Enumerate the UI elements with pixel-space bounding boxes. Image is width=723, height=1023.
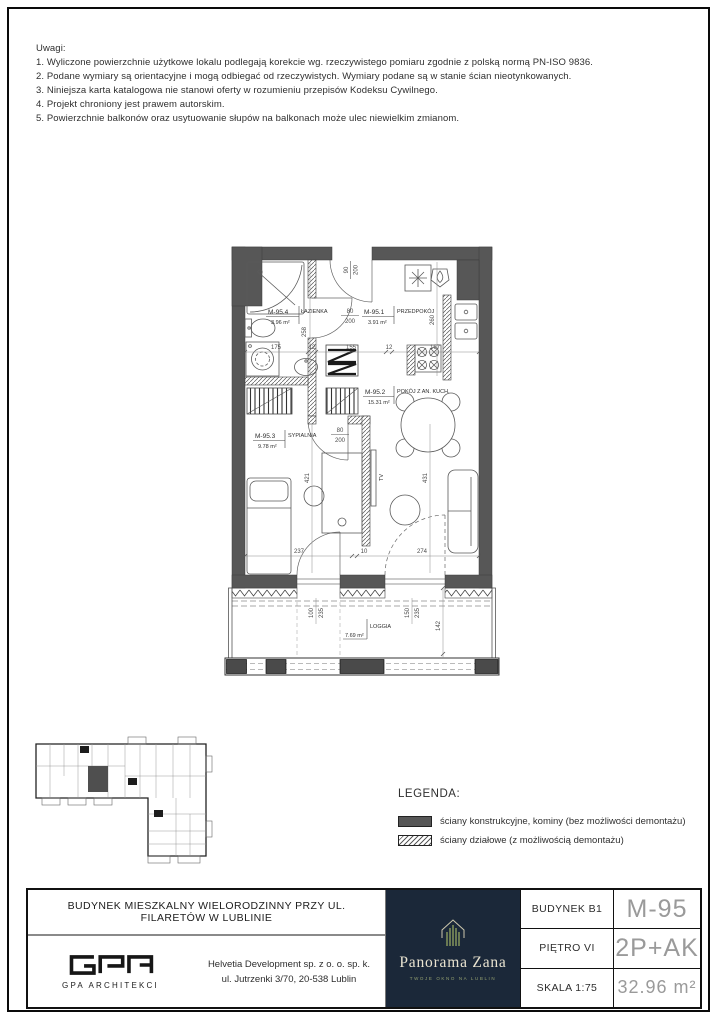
title-block-values: M-95 2P+AK 32.96 m² (613, 890, 700, 1007)
svg-text:90: 90 (344, 266, 350, 273)
legend-label: ściany działowe (z możliwością demontażu… (440, 835, 624, 846)
svg-text:235: 235 (319, 607, 325, 618)
floor-plan: 175 12 155 12 167 237 10 274 258 260 421… (222, 238, 502, 693)
svg-text:200: 200 (354, 264, 360, 275)
svg-text:200: 200 (335, 438, 346, 444)
svg-text:M-95.2: M-95.2 (365, 389, 386, 396)
svg-text:M-95.1: M-95.1 (364, 309, 385, 316)
svg-text:LOGGIA: LOGGIA (370, 624, 391, 630)
dining-table (396, 393, 460, 457)
floor-overview-plan (28, 726, 218, 881)
architect-label: GPA ARCHITEKCI (62, 981, 159, 990)
svg-text:175: 175 (271, 345, 282, 351)
note-line: 1. Wyliczone powierzchnie użytkowe lokal… (36, 56, 696, 70)
note-line: 4. Projekt chroniony jest prawem autorsk… (36, 98, 696, 112)
scale-label: SKALA 1:75 (521, 969, 613, 1007)
svg-text:274: 274 (417, 549, 428, 555)
svg-text:150: 150 (405, 607, 411, 618)
apartment-number: M-95 (614, 890, 700, 929)
bed (247, 478, 291, 574)
svg-text:SYPIALNIA: SYPIALNIA (288, 433, 317, 439)
note-line: 2. Podane wymiary są orientacyjne i mogą… (36, 70, 696, 84)
svg-text:260: 260 (430, 314, 436, 325)
apartment-type: 2P+AK (614, 929, 700, 968)
svg-text:12: 12 (309, 345, 316, 351)
brand-cell: Panorama Zana TWOJE OKNO NA LUBLIN (386, 890, 520, 1007)
note-line: 5. Powierzchnie balkonów oraz usytuowani… (36, 112, 696, 126)
floor-overview-drawing (28, 726, 218, 881)
pouf (390, 495, 420, 525)
svg-text:142: 142 (436, 620, 442, 631)
svg-text:9.78 m²: 9.78 m² (258, 444, 277, 450)
room-label-loggia: LOGGIA 7.69 m² (343, 619, 391, 639)
desk (304, 453, 362, 533)
legend-label: ściany konstrukcyjne, kominy (bez możliw… (440, 816, 686, 827)
brand-tagline: TWOJE OKNO NA LUBLIN (410, 976, 497, 981)
svg-text:M-95.4: M-95.4 (268, 309, 289, 316)
svg-text:3.96 m²: 3.96 m² (271, 320, 290, 326)
svg-text:7.69 m²: 7.69 m² (345, 633, 364, 639)
notes-title: Uwagi: (36, 42, 696, 56)
legend-swatch-structural (398, 816, 432, 827)
gas-symbol (431, 269, 449, 287)
svg-text:421: 421 (305, 472, 311, 483)
floor-plan-drawing: 175 12 155 12 167 237 10 274 258 260 421… (222, 238, 502, 693)
architect-cell: GPA ARCHITEKCI (28, 953, 193, 990)
notes-block: Uwagi: 1. Wyliczone powierzchnie użytkow… (36, 42, 696, 126)
legend-swatch-partition (398, 835, 432, 846)
floor-label: PIĘTRO VI (521, 929, 613, 968)
svg-text:258: 258 (302, 326, 308, 337)
highlighted-unit-m95 (88, 766, 108, 792)
svg-text:237: 237 (294, 549, 305, 555)
developer-cell: Helvetia Development sp. z o. o. sp. k. … (193, 957, 385, 987)
svg-text:155: 155 (346, 345, 357, 351)
kitchen-sink (455, 304, 477, 339)
svg-text:POKÓJ Z AN. KUCH.: POKÓJ Z AN. KUCH. (397, 388, 450, 395)
title-block-labels: BUDYNEK B1 PIĘTRO VI SKALA 1:75 (520, 890, 613, 1007)
developer-name: Helvetia Development sp. z o. o. sp. k. (193, 957, 385, 972)
svg-text:3.91 m²: 3.91 m² (368, 320, 387, 326)
catalog-sheet: { "notes": { "title": "Uwagi:", "items":… (0, 0, 723, 1023)
title-block-left: BUDYNEK MIESZKALNY WIELORODZINNY PRZY UL… (28, 890, 386, 1007)
developer-address: ul. Jutrzenki 3/70, 20-538 Lublin (193, 972, 385, 987)
loggia-zone (225, 588, 499, 675)
room-label-bathroom: M-95.4 ŁAZIENKA 3.96 m² (266, 306, 328, 326)
svg-text:10: 10 (361, 549, 368, 555)
building-label: BUDYNEK B1 (521, 890, 613, 929)
legend-item: ściany konstrukcyjne, kominy (bez możliw… (398, 816, 688, 827)
tv-label: TV (379, 474, 385, 481)
svg-text:M-95.3: M-95.3 (255, 433, 276, 440)
project-title: BUDYNEK MIESZKALNY WIELORODZINNY PRZY UL… (28, 890, 385, 936)
svg-text:15.31 m²: 15.31 m² (368, 400, 390, 406)
title-block: BUDYNEK MIESZKALNY WIELORODZINNY PRZY UL… (26, 888, 702, 1009)
note-line: 3. Niniejsza karta katalogowa nie stanow… (36, 84, 696, 98)
tv-unit (371, 450, 376, 506)
svg-text:235: 235 (415, 607, 421, 618)
brand-name: Panorama Zana (399, 954, 506, 972)
svg-text:ŁAZIENKA: ŁAZIENKA (301, 309, 328, 315)
panorama-zana-icon (433, 917, 473, 949)
sofa (448, 470, 478, 553)
apartment-area: 32.96 m² (614, 969, 700, 1007)
room-label-bedroom: M-95.3 SYPIALNIA 9.78 m² (253, 430, 317, 450)
vent-symbol (405, 265, 431, 291)
svg-text:80: 80 (347, 309, 354, 315)
legend-title: LEGENDA: (398, 788, 688, 800)
svg-text:431: 431 (423, 472, 429, 483)
gpa-logo (67, 953, 155, 977)
legend: LEGENDA: ściany konstrukcyjne, kominy (b… (398, 788, 688, 854)
svg-text:200: 200 (345, 319, 356, 325)
svg-text:167: 167 (430, 345, 441, 351)
svg-text:80: 80 (337, 428, 344, 434)
room-label-hall: M-95.1 PRZEDPOKÓJ 3.91 m² (362, 306, 435, 326)
svg-text:100: 100 (309, 607, 315, 618)
svg-text:12: 12 (386, 345, 393, 351)
legend-item: ściany działowe (z możliwością demontażu… (398, 835, 688, 846)
svg-text:PRZEDPOKÓJ: PRZEDPOKÓJ (397, 308, 435, 315)
